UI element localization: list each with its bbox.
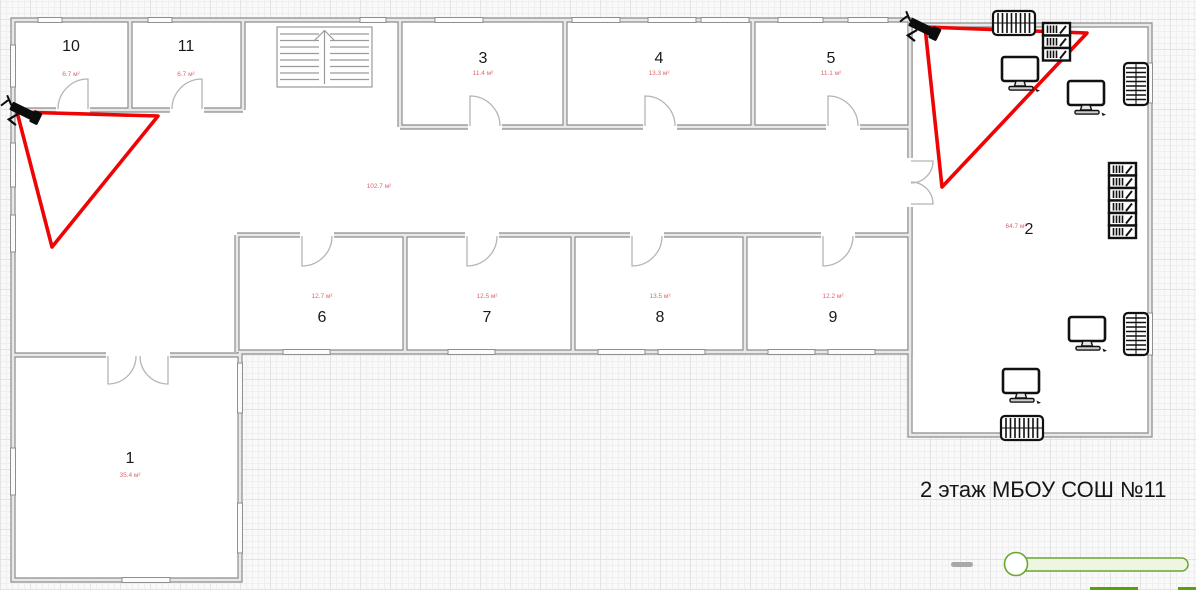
zoom-out-button[interactable]	[951, 562, 973, 567]
room-8-number: 8	[656, 309, 665, 326]
room-6-number: 6	[318, 309, 327, 326]
radiator-icon[interactable]	[1124, 313, 1148, 355]
room-1-area: 35.4 м²	[119, 472, 141, 479]
room-8-area: 13.5 м²	[649, 293, 671, 300]
zoom-slider-knob[interactable]	[1005, 553, 1028, 576]
corridor-area: 102.7 м²	[367, 183, 393, 190]
room-5-area: 11.1 м²	[821, 70, 842, 77]
room-9-area: 12.2 м²	[822, 293, 844, 300]
room-6-area: 12.7 м²	[311, 293, 333, 300]
page-title: 2 этаж МБОУ СОШ №11	[920, 477, 1166, 502]
bookshelf-icon[interactable]	[1043, 23, 1070, 61]
room-1-number: 1	[126, 450, 135, 467]
zoom-slider-track[interactable]	[1006, 558, 1188, 571]
floor-plan-canvas: 1 35.4 м² 2 64.7 м² 3 11.4 м² 4 13.3 м² …	[0, 0, 1196, 590]
zoom-control	[951, 553, 1188, 576]
radiator-icon[interactable]	[1124, 63, 1148, 105]
room-9-number: 9	[829, 309, 838, 326]
floor-plan-svg: 1 35.4 м² 2 64.7 м² 3 11.4 м² 4 13.3 м² …	[0, 0, 1196, 590]
bookshelf-icon[interactable]	[1109, 163, 1136, 238]
room-2-area: 64.7 м²	[1005, 223, 1027, 230]
room-5-number: 5	[827, 50, 836, 67]
room-3-area: 11.4 м²	[473, 70, 494, 77]
room-7-area: 12.5 м²	[476, 293, 498, 300]
room-10-area: 6.7 м²	[62, 71, 80, 78]
room-3-number: 3	[479, 50, 488, 67]
room-4-area: 13.3 м²	[648, 70, 670, 77]
radiator-icon[interactable]	[993, 11, 1035, 35]
room-10-number: 10	[62, 38, 80, 55]
room-4-number: 4	[655, 50, 664, 67]
room-11-area: 6.7 м²	[177, 71, 195, 78]
room-11-number: 11	[178, 38, 195, 55]
radiator-icon[interactable]	[1001, 416, 1043, 440]
room-7-number: 7	[483, 309, 492, 326]
